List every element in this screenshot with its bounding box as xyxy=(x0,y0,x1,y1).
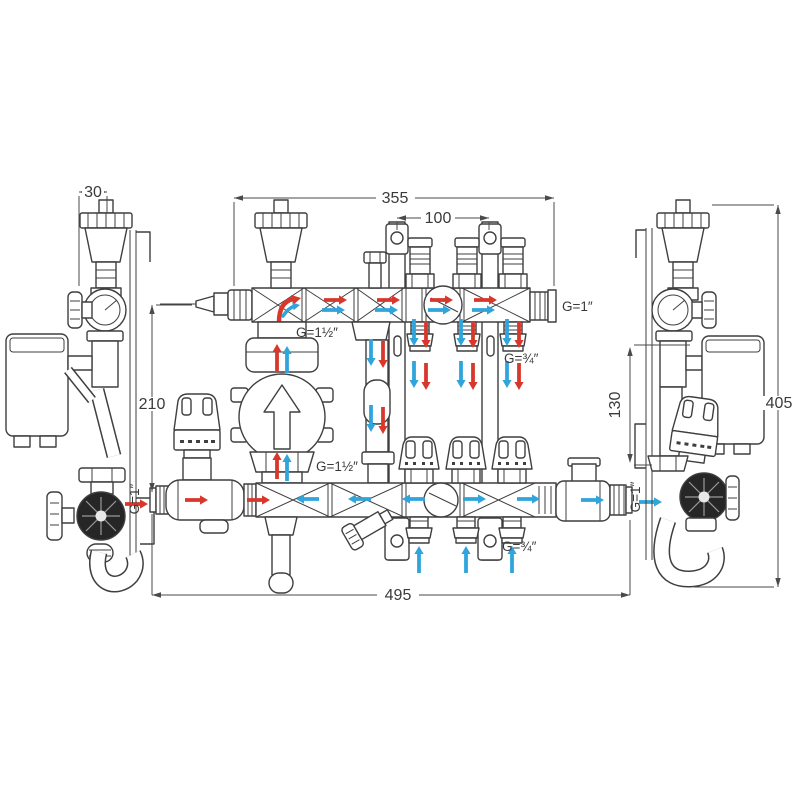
ball-valve-gauge xyxy=(424,483,458,517)
sight-glass xyxy=(364,380,390,424)
dim-label: 210 xyxy=(139,396,166,413)
dim-label: 405 xyxy=(766,395,793,412)
air-vent-icon xyxy=(255,200,307,288)
dim-label: 495 xyxy=(385,587,412,604)
ball-valve-gauge xyxy=(424,286,462,324)
air-vent-icon xyxy=(657,200,709,288)
label-bottom-inlet: G=1″ xyxy=(127,483,142,514)
right-side-view xyxy=(635,200,764,579)
label-top-outlets: G=¾″ xyxy=(504,351,539,366)
fill-valve xyxy=(364,252,386,288)
dim-label: 30 xyxy=(84,184,102,201)
label-top-supply: G=1½″ xyxy=(296,325,338,340)
loop-outlet xyxy=(407,322,433,351)
loop-return-inlet xyxy=(406,517,432,543)
flow-meter xyxy=(499,238,527,288)
sensor-probe xyxy=(196,296,214,312)
valve-knob xyxy=(492,437,532,483)
air-vent-icon xyxy=(80,200,132,288)
thermometer-gauge xyxy=(68,289,126,331)
label-top-end: G=1″ xyxy=(562,299,593,314)
label-bottom-outlet: G=1″ xyxy=(628,481,643,512)
u-bend-pipe xyxy=(98,552,136,584)
loop-outlet xyxy=(454,322,480,351)
manifold-technical-drawing: 30 355 100 210 495 xyxy=(0,0,800,800)
shutoff-valve xyxy=(680,473,739,531)
valve-knob xyxy=(399,437,439,483)
shutoff-valve xyxy=(47,492,125,562)
flow-meter xyxy=(453,238,481,288)
dim-label: 130 xyxy=(607,392,624,419)
bypass-pipe xyxy=(352,322,394,483)
flow-meter xyxy=(406,238,434,288)
thermostatic-head xyxy=(174,394,220,458)
drain-pipe xyxy=(265,517,297,593)
thermometer-gauge xyxy=(652,289,716,331)
dim-label: 100 xyxy=(425,210,452,227)
dim-100: 100 xyxy=(397,210,489,230)
loop-return-inlet xyxy=(453,517,479,543)
left-side-view xyxy=(6,200,154,584)
label-bottom-outlets: G=¾″ xyxy=(502,539,537,554)
wall-bracket xyxy=(635,230,646,468)
valve-knob xyxy=(446,437,486,483)
loop-outlet xyxy=(500,322,526,351)
tee-piece xyxy=(556,458,610,521)
dim-label: 355 xyxy=(382,190,409,207)
label-pump-union: G=1½″ xyxy=(316,459,358,474)
